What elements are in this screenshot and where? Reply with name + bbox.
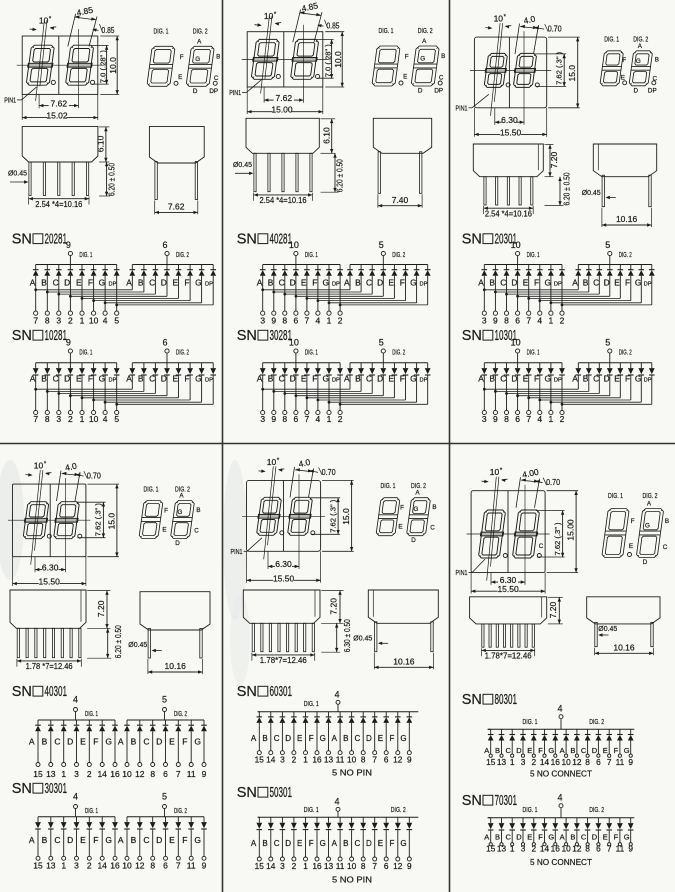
svg-text:G: G [400,734,406,743]
svg-text:G: G [635,277,642,287]
svg-text:G: G [99,374,106,384]
svg-text:8: 8 [45,414,50,424]
svg-text:7: 7 [33,414,38,424]
svg-text:B: B [441,53,445,60]
svg-text:5: 5 [162,695,167,705]
svg-text:2: 2 [68,316,73,326]
svg-text:F: F [390,734,395,743]
svg-text:1: 1 [303,861,308,871]
svg-text:6.20 ± 0.50: 6.20 ± 0.50 [113,625,123,658]
svg-text:E: E [614,277,620,287]
svg-text:G: G [624,746,630,755]
svg-text:DIG. 2: DIG. 2 [391,807,406,814]
svg-text:13: 13 [324,755,334,765]
svg-text:7: 7 [372,861,377,871]
svg-text:A: A [332,734,338,743]
svg-text:8: 8 [585,757,590,767]
svg-text:1: 1 [510,844,515,854]
svg-text:15: 15 [486,844,496,854]
svg-text:14: 14 [266,861,276,871]
svg-text:G: G [410,277,417,287]
svg-text:E: E [301,277,307,287]
svg-text:7.62 (.3" ): 7.62 (.3" ) [553,522,562,556]
svg-text:DIG. 1: DIG. 1 [523,719,538,726]
svg-text:9: 9 [66,338,71,348]
svg-text:E: E [523,277,529,287]
svg-text:5 NO PIN: 5 NO PIN [332,768,372,778]
svg-text:D: D [290,277,296,287]
svg-text:E: E [173,374,179,384]
svg-text:SN: SN [462,692,482,708]
svg-text:E: E [378,839,383,848]
svg-text:16: 16 [312,755,322,765]
svg-text:Ø0.45: Ø0.45 [598,624,617,633]
svg-text:0.70: 0.70 [322,467,336,477]
svg-text:13: 13 [46,769,56,779]
svg-text:C: C [149,277,155,287]
svg-text:2: 2 [560,414,565,424]
svg-text:A: A [30,374,36,384]
svg-text:G: G [645,523,650,530]
svg-text:C: C [593,374,599,384]
svg-text:3: 3 [521,844,526,854]
svg-text:E: E [629,543,633,550]
svg-text:DP: DP [644,378,652,384]
svg-text:A: A [257,374,263,384]
svg-text:6.30 ± 0.50: 6.30 ± 0.50 [342,619,352,652]
svg-text:DIG. 1: DIG. 1 [523,807,538,814]
svg-text:6: 6 [596,757,601,767]
svg-text:DP: DP [648,87,657,94]
svg-text:10: 10 [561,844,571,854]
svg-text:DIG. 1: DIG. 1 [608,493,623,500]
svg-text:B: B [489,277,495,287]
svg-text:0.70: 0.70 [546,477,560,487]
svg-text:DP: DP [644,281,652,287]
svg-text:70301: 70301 [495,793,518,809]
svg-text:11: 11 [336,755,345,765]
svg-text:0.70: 0.70 [87,471,101,481]
svg-text:SN: SN [12,328,32,344]
svg-text:6.30: 6.30 [42,562,59,572]
svg-text:8: 8 [150,769,155,779]
svg-text:D: D [285,734,291,743]
svg-text:E: E [527,746,532,755]
svg-text:7: 7 [305,414,310,424]
svg-text:D: D [511,277,517,287]
svg-text:G: G [400,839,406,848]
svg-text:11: 11 [187,769,196,779]
svg-text:4: 4 [73,695,78,705]
svg-text:1: 1 [303,755,308,765]
svg-text:B: B [583,374,589,384]
svg-text:15: 15 [255,861,265,871]
svg-text:B: B [343,734,348,743]
svg-text:E: E [398,524,402,531]
svg-text:1: 1 [549,316,554,326]
svg-text:F: F [312,277,317,287]
svg-text:F: F [614,746,619,755]
svg-text:50301: 50301 [270,785,293,801]
svg-text:C: C [593,277,599,287]
svg-text:F: F [180,54,184,61]
svg-text:SN: SN [12,684,32,700]
svg-text:10.16: 10.16 [616,214,638,224]
svg-text:15.0: 15.0 [567,65,577,82]
svg-text:3: 3 [74,769,79,779]
svg-text:DIG. 1: DIG. 1 [79,350,92,357]
svg-text:G: G [323,277,330,287]
svg-text:C: C [653,76,658,83]
svg-text:DIG. 2: DIG. 2 [418,28,433,35]
svg-text:1: 1 [327,316,332,326]
svg-text:11: 11 [336,861,345,871]
svg-text:DIG. 2: DIG. 2 [176,350,189,357]
svg-text:F: F [400,374,405,384]
svg-text:C: C [355,839,361,848]
svg-text:4: 4 [557,704,562,714]
svg-text:DIG. 2: DIG. 2 [392,350,405,357]
svg-text:F: F [184,277,189,287]
svg-text:DIG. 2: DIG. 2 [619,252,632,259]
svg-text:SN: SN [12,232,32,248]
svg-text:E: E [169,835,175,845]
svg-text:G: G [105,835,112,845]
svg-text:8: 8 [504,414,509,424]
svg-text:4: 4 [537,414,542,424]
svg-text:2: 2 [87,861,92,871]
svg-text:DP: DP [420,281,428,287]
svg-text:B: B [216,53,220,60]
svg-text:A: A [30,277,36,287]
svg-text:DIG. 1: DIG. 1 [154,29,169,36]
svg-text:B: B [495,833,500,842]
svg-text:G: G [548,746,554,755]
svg-text:13: 13 [497,757,507,767]
svg-text:20281: 20281 [45,232,68,248]
svg-text:D: D [366,839,372,848]
svg-text:DP: DP [554,281,562,287]
svg-text:E: E [603,833,608,842]
svg-text:D: D [67,737,73,747]
svg-text:12: 12 [572,844,582,854]
svg-text:DIG. 1: DIG. 1 [379,28,394,35]
svg-text:9: 9 [493,414,498,424]
svg-text:B: B [570,746,575,755]
svg-text:E: E [297,839,302,848]
svg-text:DP: DP [420,378,428,384]
svg-text:C: C [500,374,506,384]
svg-text:C: C [143,835,149,845]
svg-text:6.20 ± 0.50: 6.20 ± 0.50 [561,172,571,205]
svg-text:15.50: 15.50 [500,127,522,137]
svg-text:D: D [604,374,610,384]
svg-text:F: F [390,839,395,848]
svg-text:15: 15 [33,769,43,779]
svg-text:2: 2 [531,844,536,854]
svg-text:12: 12 [135,769,145,779]
svg-text:2: 2 [338,414,343,424]
svg-text:16: 16 [110,861,120,871]
svg-text:10: 10 [89,316,99,326]
svg-text:7.62 (.3" ): 7.62 (.3" ) [554,51,563,85]
svg-text:C: C [430,525,435,532]
svg-text:10: 10 [511,240,521,250]
svg-text:E: E [603,746,608,755]
svg-text:6: 6 [384,755,389,765]
svg-text:7: 7 [305,316,310,326]
svg-text:PIN1: PIN1 [229,88,241,97]
svg-text:DIG. 1: DIG. 1 [527,350,540,357]
svg-text:D: D [156,835,162,845]
svg-text:D: D [161,277,167,287]
svg-text:DP: DP [332,281,340,287]
svg-text:2: 2 [531,757,536,767]
svg-text:13: 13 [46,861,56,871]
svg-text:1: 1 [327,414,332,424]
svg-text:5: 5 [114,316,119,326]
svg-text:13: 13 [324,861,334,871]
svg-text:F: F [538,746,543,755]
svg-text:DIG. 1: DIG. 1 [144,487,159,494]
svg-text:F: F [400,277,405,287]
svg-text:1.78*7=12.46: 1.78*7=12.46 [260,656,308,665]
svg-text:F: F [405,54,409,61]
svg-text:5 NO CONNECT: 5 NO CONNECT [530,857,592,867]
svg-text:DIG. 2: DIG. 2 [174,808,187,815]
svg-text:1: 1 [61,769,66,779]
svg-text:D: D [290,374,296,384]
svg-text:A: A [29,737,35,747]
svg-text:E: E [378,734,383,743]
svg-text:C: C [214,75,219,82]
svg-text:D: D [411,537,416,544]
svg-text:11: 11 [616,844,625,854]
svg-text:9: 9 [628,757,633,767]
svg-text:C: C [663,544,668,551]
svg-text:E: E [523,374,529,384]
svg-text:D: D [64,374,70,384]
svg-text:DIG. 1: DIG. 1 [85,808,98,815]
svg-text:C: C [54,835,60,845]
svg-text:B: B [432,504,436,511]
svg-text:6: 6 [515,414,520,424]
svg-text:1: 1 [61,861,66,871]
svg-text:E: E [80,737,86,747]
svg-text:D: D [634,87,639,94]
svg-text:5 NO CONNECT: 5 NO CONNECT [530,768,592,778]
svg-text:4: 4 [103,316,108,326]
svg-text:D: D [175,540,180,547]
svg-text:0.85: 0.85 [102,25,115,35]
svg-text:SN: SN [462,232,482,248]
svg-text:10: 10 [122,769,132,779]
svg-text:DIG. 2: DIG. 2 [589,719,604,726]
svg-text:14: 14 [97,769,107,779]
svg-text:A: A [126,277,132,287]
svg-text:8: 8 [361,861,366,871]
svg-text:4: 4 [537,316,542,326]
svg-text:8: 8 [361,755,366,765]
svg-text:5: 5 [162,792,167,802]
svg-text:Ø0.45: Ø0.45 [8,169,27,178]
svg-text:A: A [251,839,257,848]
svg-text:3: 3 [56,414,61,424]
svg-text:6: 6 [162,240,167,250]
svg-text:C: C [279,277,285,287]
svg-text:E: E [169,737,175,747]
svg-text:E: E [621,75,625,82]
svg-text:10: 10 [347,861,357,871]
svg-text:G: G [195,277,202,287]
svg-text:7.20: 7.20 [548,601,558,618]
svg-text:2: 2 [292,861,297,871]
svg-text:A: A [560,746,565,755]
svg-text:5: 5 [605,240,610,250]
svg-text:C: C [143,737,149,747]
svg-text:G: G [544,374,551,384]
svg-text:E: E [173,277,179,287]
svg-text:10: 10 [494,14,504,24]
svg-text:12: 12 [393,861,403,871]
svg-text:Ø0.45: Ø0.45 [353,634,372,643]
svg-text:1: 1 [510,757,515,767]
svg-text:B: B [131,835,137,845]
svg-text:Ø0.45: Ø0.45 [582,188,601,197]
svg-text:2: 2 [87,769,92,779]
svg-text:7.0 (.28" ): 7.0 (.28" ) [323,44,332,78]
svg-text:10: 10 [122,861,132,871]
svg-text:6.10: 6.10 [96,135,106,152]
svg-text:PIN1: PIN1 [456,568,468,577]
svg-text:1: 1 [549,414,554,424]
svg-text:SN: SN [12,781,32,797]
svg-text:10: 10 [490,467,500,477]
svg-text:7.20: 7.20 [329,598,339,615]
svg-text:B: B [665,518,669,525]
svg-text:B: B [41,277,47,287]
svg-text:2.54 *4=10.16: 2.54 *4=10.16 [260,196,308,205]
svg-text:16: 16 [312,861,322,871]
svg-text:C: C [53,374,59,384]
svg-text:DIG. 1: DIG. 1 [304,807,319,814]
svg-text:10.16: 10.16 [613,643,635,653]
svg-text:6.20 ± 0.50: 6.20 ± 0.50 [334,159,344,192]
svg-text:A: A [126,374,132,384]
svg-text:D: D [161,374,167,384]
svg-text:SN: SN [237,232,257,248]
svg-text:A: A [332,839,338,848]
svg-text:B: B [343,839,348,848]
svg-text:A: A [118,737,124,747]
svg-text:7: 7 [526,316,531,326]
svg-text:10: 10 [511,338,521,348]
svg-text:A: A [560,833,565,842]
svg-text:12: 12 [572,757,582,767]
svg-text:C: C [505,833,511,842]
svg-text:F: F [312,374,317,384]
svg-text:C: C [505,746,511,755]
svg-text:B: B [570,833,575,842]
svg-text:3: 3 [74,861,79,871]
svg-text:10: 10 [289,338,299,348]
svg-text:8: 8 [282,316,287,326]
svg-text:1.78*7=12.46: 1.78*7=12.46 [485,652,533,661]
svg-text:G: G [420,56,425,63]
svg-text:D: D [592,746,598,755]
svg-text:7: 7 [526,414,531,424]
svg-text:B: B [41,374,47,384]
svg-text:B: B [196,507,200,514]
svg-text:15.50: 15.50 [273,573,295,583]
svg-text:4: 4 [334,796,339,806]
svg-text:12: 12 [135,861,145,871]
svg-text:DIG. 2: DIG. 2 [176,252,189,259]
svg-text:16: 16 [551,757,561,767]
svg-text:12: 12 [393,755,403,765]
svg-text:7.62: 7.62 [168,202,185,212]
svg-text:3: 3 [482,316,487,326]
svg-text:B: B [42,737,48,747]
svg-text:10.0: 10.0 [108,57,118,74]
svg-text:G: G [320,734,326,743]
svg-text:14: 14 [540,757,550,767]
svg-text:E: E [301,374,307,384]
svg-text:8: 8 [150,861,155,871]
svg-text:D: D [516,746,522,755]
svg-text:10: 10 [264,11,274,21]
svg-text:14: 14 [540,844,550,854]
svg-text:10: 10 [267,457,277,467]
svg-text:7: 7 [33,316,38,326]
svg-text:E: E [76,277,82,287]
svg-text:3: 3 [56,316,61,326]
svg-text:9: 9 [202,861,207,871]
svg-text:B: B [268,277,274,287]
svg-text:B: B [42,835,48,845]
svg-text:4: 4 [557,793,562,803]
svg-text:A: A [344,277,350,287]
svg-text:D: D [67,835,73,845]
svg-text:15.0: 15.0 [341,508,351,525]
svg-text:3: 3 [280,861,285,871]
svg-text:F: F [309,734,314,743]
svg-text:G: G [544,277,551,287]
svg-text:1: 1 [80,316,85,326]
svg-text:B: B [489,374,495,384]
svg-text:DIG. 2: DIG. 2 [392,252,405,259]
svg-text:A: A [257,277,263,287]
svg-text:DP: DP [209,88,218,95]
svg-text:D: D [193,88,198,95]
svg-text:3: 3 [260,414,265,424]
svg-text:40301: 40301 [45,684,68,700]
svg-text:3: 3 [280,755,285,765]
svg-text:6: 6 [162,338,167,348]
svg-text:DIG. 2: DIG. 2 [174,711,187,718]
svg-text:4: 4 [334,689,339,699]
svg-text:B: B [268,374,274,384]
svg-text:A: A [484,746,489,755]
svg-text:1: 1 [80,414,85,424]
svg-text:C: C [194,528,199,535]
svg-text:D: D [418,88,423,95]
svg-text:15.0: 15.0 [106,513,116,530]
svg-text:F: F [625,374,630,384]
svg-text:10: 10 [289,240,299,250]
svg-text:SN: SN [462,793,482,809]
svg-text:7.0 (.28" ): 7.0 (.28" ) [98,50,107,84]
